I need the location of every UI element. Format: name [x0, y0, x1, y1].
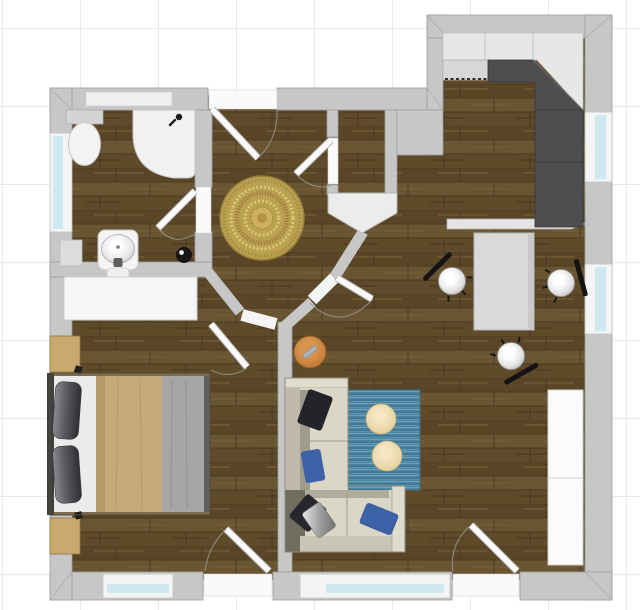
threshold-bathroom — [196, 187, 211, 233]
bed-pillow-north — [52, 381, 82, 440]
wall-bath-east-upper — [195, 110, 212, 187]
kitchen-appliance[interactable] — [443, 60, 488, 80]
nightstand-north[interactable] — [50, 336, 80, 372]
window-top-bath[interactable] — [86, 92, 172, 106]
toilet-bowl[interactable] — [69, 123, 101, 166]
pouf-south[interactable] — [372, 441, 402, 471]
threshold-living-balcony — [453, 574, 519, 596]
dining-table-shade — [528, 233, 534, 330]
dining-chair-west-seat[interactable] — [439, 268, 466, 295]
sofa-horizontal-backrest[interactable] — [300, 536, 392, 552]
wardrobe[interactable] — [64, 277, 197, 320]
dining-chair-east-seat[interactable] — [548, 270, 575, 297]
dining-chair-south-seat[interactable] — [498, 343, 525, 370]
wall-top-mid — [277, 88, 427, 110]
sofa-armrest-top[interactable] — [285, 378, 348, 388]
window-bottom-living-glass — [326, 584, 444, 593]
wall-pillar-northeast — [385, 110, 397, 195]
sink-faucet — [114, 258, 123, 267]
bath-floor-object[interactable] — [176, 247, 192, 263]
sideboard-right-upper[interactable] — [548, 390, 583, 478]
wall-bath-east-lower — [195, 232, 212, 262]
floorplan-svg — [0, 0, 640, 610]
shower-head-icon — [176, 114, 182, 120]
sink-drain — [116, 245, 120, 249]
sofa-vertical-backrest[interactable] — [285, 388, 300, 492]
window-right-dining-glass — [595, 267, 606, 331]
window-right-kitchen-glass — [595, 115, 606, 179]
bed-pillow-south — [52, 445, 82, 504]
bed-footboard-edge — [204, 376, 210, 512]
wall-hall-pillar-upper — [327, 110, 338, 137]
pouf-north[interactable] — [366, 404, 396, 434]
dining-table[interactable] — [474, 233, 534, 330]
window-left-glass — [53, 136, 63, 229]
bed-blanket — [162, 376, 204, 512]
threshold-entrance — [209, 90, 277, 109]
sideboard-right-lower[interactable] — [548, 478, 583, 565]
wall-block-northeast — [397, 110, 443, 155]
bed-duvet — [96, 376, 162, 512]
bath-floor-object-highlight — [179, 250, 184, 255]
bed-duvet-shade — [96, 376, 105, 512]
threshold-bedroom-balcony — [204, 574, 272, 596]
toilet-tank[interactable] — [66, 110, 103, 124]
floorplan-canvas — [0, 0, 640, 610]
nightstand-south[interactable] — [50, 518, 80, 554]
hall-rug-dot — [257, 213, 267, 223]
bath-cabinet[interactable] — [60, 240, 82, 266]
window-bottom-bedroom-glass — [107, 584, 169, 593]
